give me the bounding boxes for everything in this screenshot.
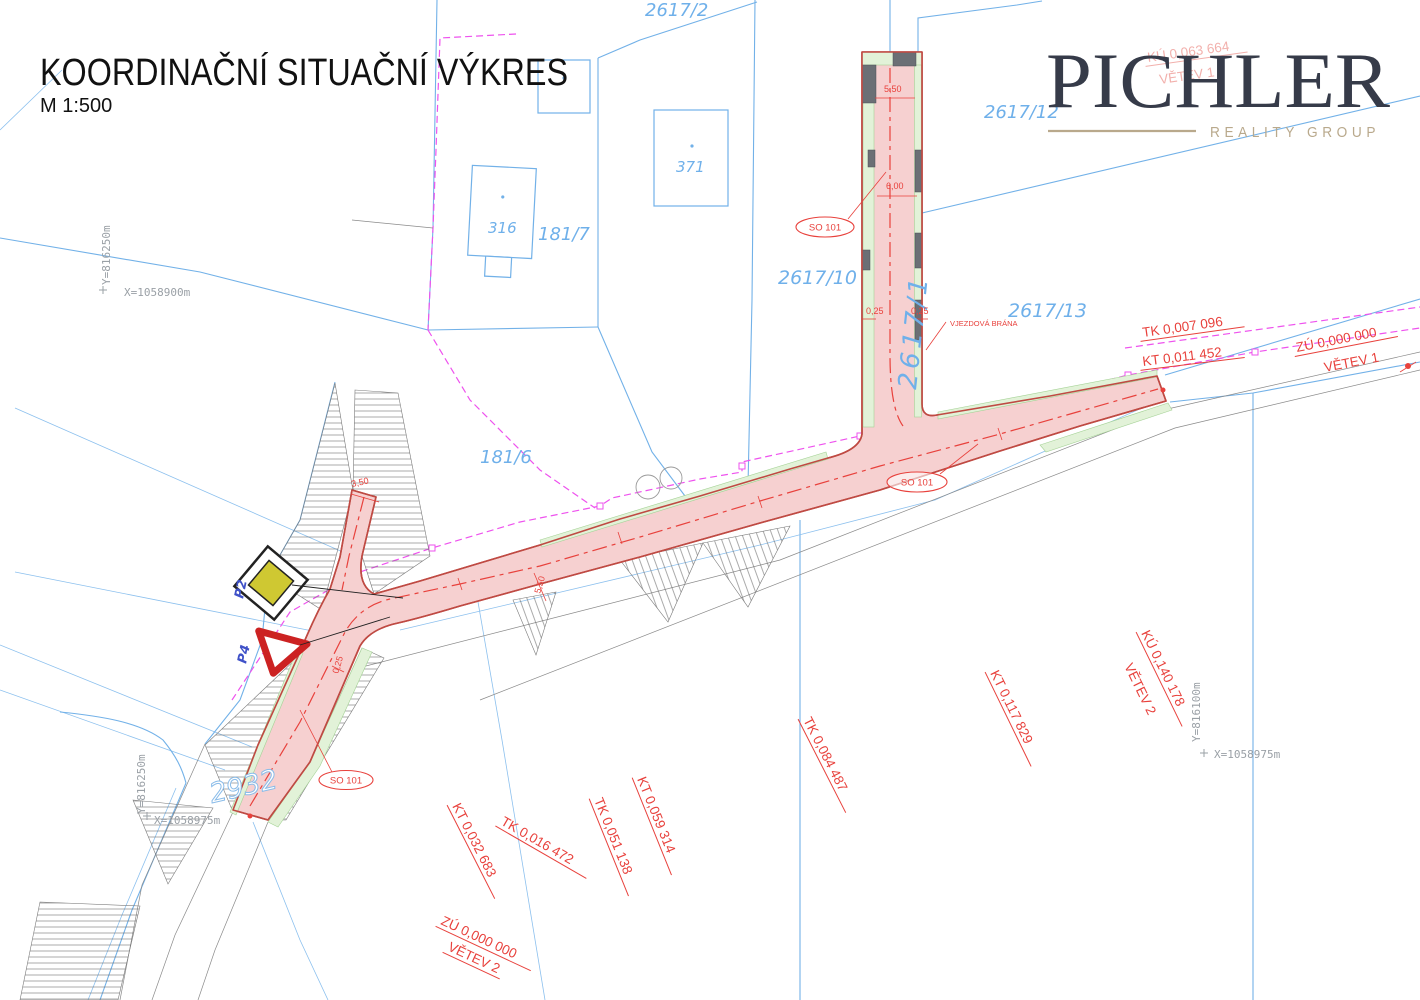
logo-tagline-text: REALITY GROUP <box>1210 124 1380 141</box>
svg-text:VĚTEV 2: VĚTEV 2 <box>1121 661 1159 717</box>
parcel-label-371: 371 <box>676 158 705 176</box>
slope-label-vetev2a: VĚTEV 2 <box>1121 661 1159 717</box>
parcel-label-316: 316 <box>488 219 517 237</box>
so101-callout-top: SO 101 <box>796 217 854 237</box>
coord-x-bottomleft: X=1058975m <box>154 814 221 827</box>
svg-text:TK 0,016 472: TK 0,016 472 <box>499 814 577 868</box>
svg-text:SO 101: SO 101 <box>330 776 362 787</box>
slope-label-tk4: TK 0,051 138 <box>589 793 643 896</box>
so101-callout-bottom: SO 101 <box>319 771 373 790</box>
svg-text:KT 0,032 683: KT 0,032 683 <box>449 801 499 880</box>
page-scale: M 1:500 <box>40 95 112 117</box>
logo: PICHLER REALITY GROUP <box>1046 37 1390 141</box>
svg-text:SO 101: SO 101 <box>809 223 841 234</box>
so101-callout-mid: SO 101 <box>887 472 947 492</box>
slope-label-kt2: KT 0,117 829 <box>985 665 1045 766</box>
terrain-gray-lines <box>120 220 1420 1000</box>
coord-y-right: Y=816100m <box>1190 682 1203 742</box>
parcel-label-2617-10: 2617/10 <box>778 267 857 289</box>
parcel-label-181-6: 181/6 <box>480 447 532 468</box>
coord-x-right: X=1058975m <box>1214 748 1281 761</box>
svg-text:TK 0,084 487: TK 0,084 487 <box>800 715 850 794</box>
coord-x-topleft: X=1058900m <box>124 286 191 299</box>
svg-text:KT 0,117 829: KT 0,117 829 <box>987 668 1035 746</box>
slope-label-tk3: TK 0,016 472 <box>495 812 594 878</box>
slope-label-tk1: TK 0,007 096 <box>1138 311 1244 341</box>
parcel-label-2617-13: 2617/13 <box>1008 300 1087 322</box>
svg-text:ZÚ 0,000 000: ZÚ 0,000 000 <box>1295 325 1378 355</box>
dim-025-right: 0,25 <box>911 306 929 316</box>
logo-brand-text: PICHLER <box>1046 37 1390 124</box>
svg-text:TK 0,007 096: TK 0,007 096 <box>1141 314 1223 340</box>
page-title: KOORDINAČNÍ SITUAČNÍ VÝKRES <box>40 50 568 94</box>
svg-text:TK 0,051 138: TK 0,051 138 <box>591 796 635 877</box>
parcel-label-181-7: 181/7 <box>538 224 590 245</box>
parcel-label-2617-2: 2617/2 <box>645 0 708 21</box>
traffic-sign-p4-label: P4 <box>235 644 254 665</box>
dim-025-left: 0,25 <box>866 306 884 316</box>
slope-label-zu1: ZÚ 0,000 000 <box>1292 321 1398 357</box>
slope-label-tk2: TK 0,084 487 <box>798 712 860 813</box>
svg-text:KT 0,059 314: KT 0,059 314 <box>634 775 678 856</box>
coord-y-topleft: Y=816250m <box>100 225 113 285</box>
site-plan-svg: KÚ 0,063 664 VĚTEV 1 <box>0 0 1420 1000</box>
coord-y-bottomleft: Y=816250m <box>135 754 148 814</box>
dim-550-top: 5,50 <box>884 84 902 94</box>
slope-label-kt3: KT 0,032 683 <box>447 798 509 899</box>
drawing-canvas: KÚ 0,063 664 VĚTEV 1 <box>0 0 1420 1000</box>
slope-hatching <box>20 383 790 1000</box>
dim-600: 6,00 <box>886 181 904 191</box>
svg-text:SO 101: SO 101 <box>901 478 933 489</box>
slope-label-kt4: KT 0,059 314 <box>632 772 686 875</box>
